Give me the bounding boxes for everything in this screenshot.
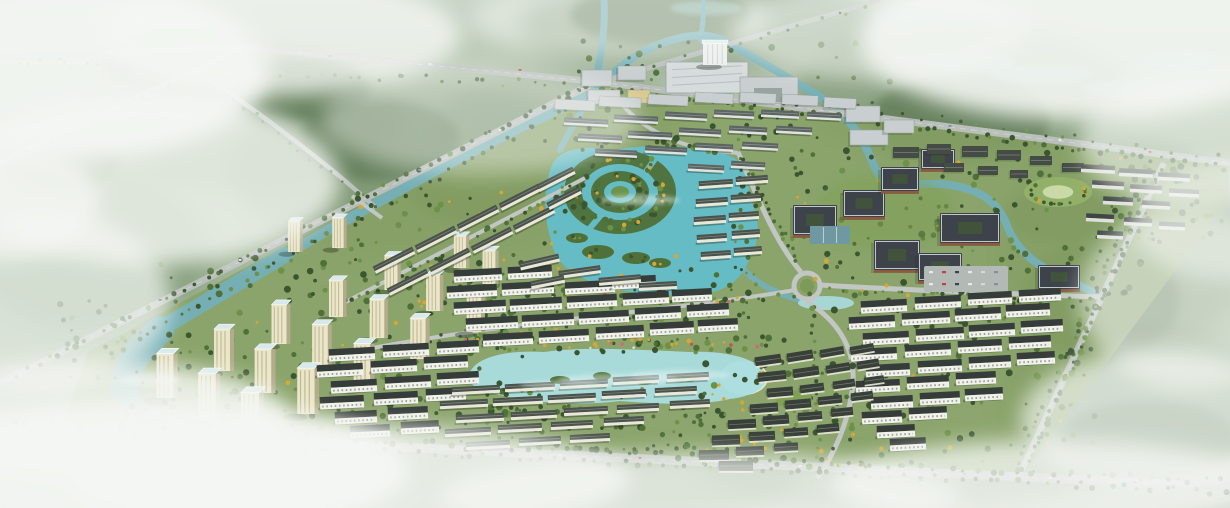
apartment-slab-building xyxy=(1015,351,1056,366)
apartment-slab-building xyxy=(954,371,997,386)
apartment-slab-building xyxy=(953,307,1002,323)
campus-pavilion xyxy=(977,166,999,177)
apartment-slab-building xyxy=(918,391,961,406)
village-house xyxy=(710,435,740,448)
villa-row-building xyxy=(730,229,760,241)
apartment-slab-building xyxy=(445,284,498,300)
apartment-slab-building xyxy=(1017,288,1062,303)
apartment-slab-building xyxy=(963,387,1004,402)
campus-pavilion xyxy=(926,144,952,156)
apartment-slab-building xyxy=(481,332,534,348)
apartment-slab-building xyxy=(381,343,430,359)
apartment-slab-building xyxy=(967,323,1016,339)
apartment-slab-building xyxy=(685,303,730,318)
village-house xyxy=(815,423,839,435)
apartment-slab-building xyxy=(903,343,952,359)
apartment-slab-building xyxy=(907,406,948,421)
apartment-slab-building xyxy=(435,340,480,355)
apartment-slab-building xyxy=(318,395,365,410)
apartment-slab-building xyxy=(315,363,364,379)
apartment-slab-building xyxy=(914,327,965,343)
apartment-slab-building xyxy=(386,406,429,421)
aerial-masterplan-rendering xyxy=(0,0,1230,508)
village-house xyxy=(726,419,756,431)
apartment-slab-building xyxy=(594,325,645,341)
apartment-slab-building xyxy=(670,288,713,303)
village-house xyxy=(772,442,798,453)
housing-row xyxy=(1103,196,1133,206)
campus-courtyard-building xyxy=(840,190,885,220)
apartment-slab-building xyxy=(869,395,914,410)
apartment-slab-building xyxy=(648,321,695,336)
village-house xyxy=(761,415,789,428)
apartment-slab-building xyxy=(966,291,1013,306)
apartment-slab-building xyxy=(859,299,908,315)
apartment-slab-building xyxy=(916,359,963,374)
apartment-slab-building xyxy=(1007,335,1052,350)
apartment-slab-building xyxy=(905,375,950,390)
campus-pavilion xyxy=(996,150,1022,162)
apartment-slab-building xyxy=(956,339,1003,354)
apartment-slab-building xyxy=(1004,303,1051,318)
campus-pavilion xyxy=(892,147,920,160)
villa-row-building xyxy=(637,281,677,293)
apartment-slab-building xyxy=(369,359,418,375)
campus-courtyard-building xyxy=(878,167,919,194)
campus-pavilion xyxy=(1029,156,1053,167)
apartment-slab-building xyxy=(329,379,378,395)
campus-courtyard-building xyxy=(871,240,920,273)
rendering-canvas xyxy=(0,0,1230,508)
apartment-slab-building xyxy=(372,391,419,406)
street-block xyxy=(805,112,841,123)
apartment-slab-building xyxy=(900,311,951,327)
sports-courts xyxy=(810,226,850,244)
apartment-slab-building xyxy=(860,410,903,425)
apartment-slab-building xyxy=(847,315,896,331)
apartment-slab-building xyxy=(435,371,480,386)
villa-row-building xyxy=(732,246,762,258)
apartment-slab-building xyxy=(537,329,590,345)
apartment-slab-building xyxy=(621,291,670,307)
campus-pavilion xyxy=(1061,163,1085,174)
village-house xyxy=(747,431,775,443)
campus-pavilion xyxy=(943,163,965,174)
village-house xyxy=(782,427,808,439)
campus-courtyard-building xyxy=(937,213,1000,246)
apartment-slab-building xyxy=(633,306,682,322)
apartment-slab-building xyxy=(327,347,376,363)
apartment-slab-building xyxy=(383,375,432,391)
apartment-slab-building xyxy=(875,424,916,439)
apartment-slab-building xyxy=(452,268,503,284)
apartment-slab-building xyxy=(565,294,618,310)
street-block xyxy=(729,161,765,172)
apartment-slab-building xyxy=(967,355,1012,370)
apartment-slab-building xyxy=(422,355,469,370)
apartment-slab-building xyxy=(696,318,739,333)
parking-lot xyxy=(924,266,1008,292)
apartment-slab-building xyxy=(913,295,962,311)
apartment-slab-building xyxy=(1019,319,1064,334)
campus-courtyard-building xyxy=(1035,265,1080,292)
apartment-slab-building xyxy=(577,310,630,326)
housing-row xyxy=(1086,213,1114,222)
campus-pavilion xyxy=(961,146,989,159)
village-house xyxy=(748,403,778,416)
campus-pavilion xyxy=(1009,170,1029,180)
circular-garden xyxy=(1024,177,1092,207)
